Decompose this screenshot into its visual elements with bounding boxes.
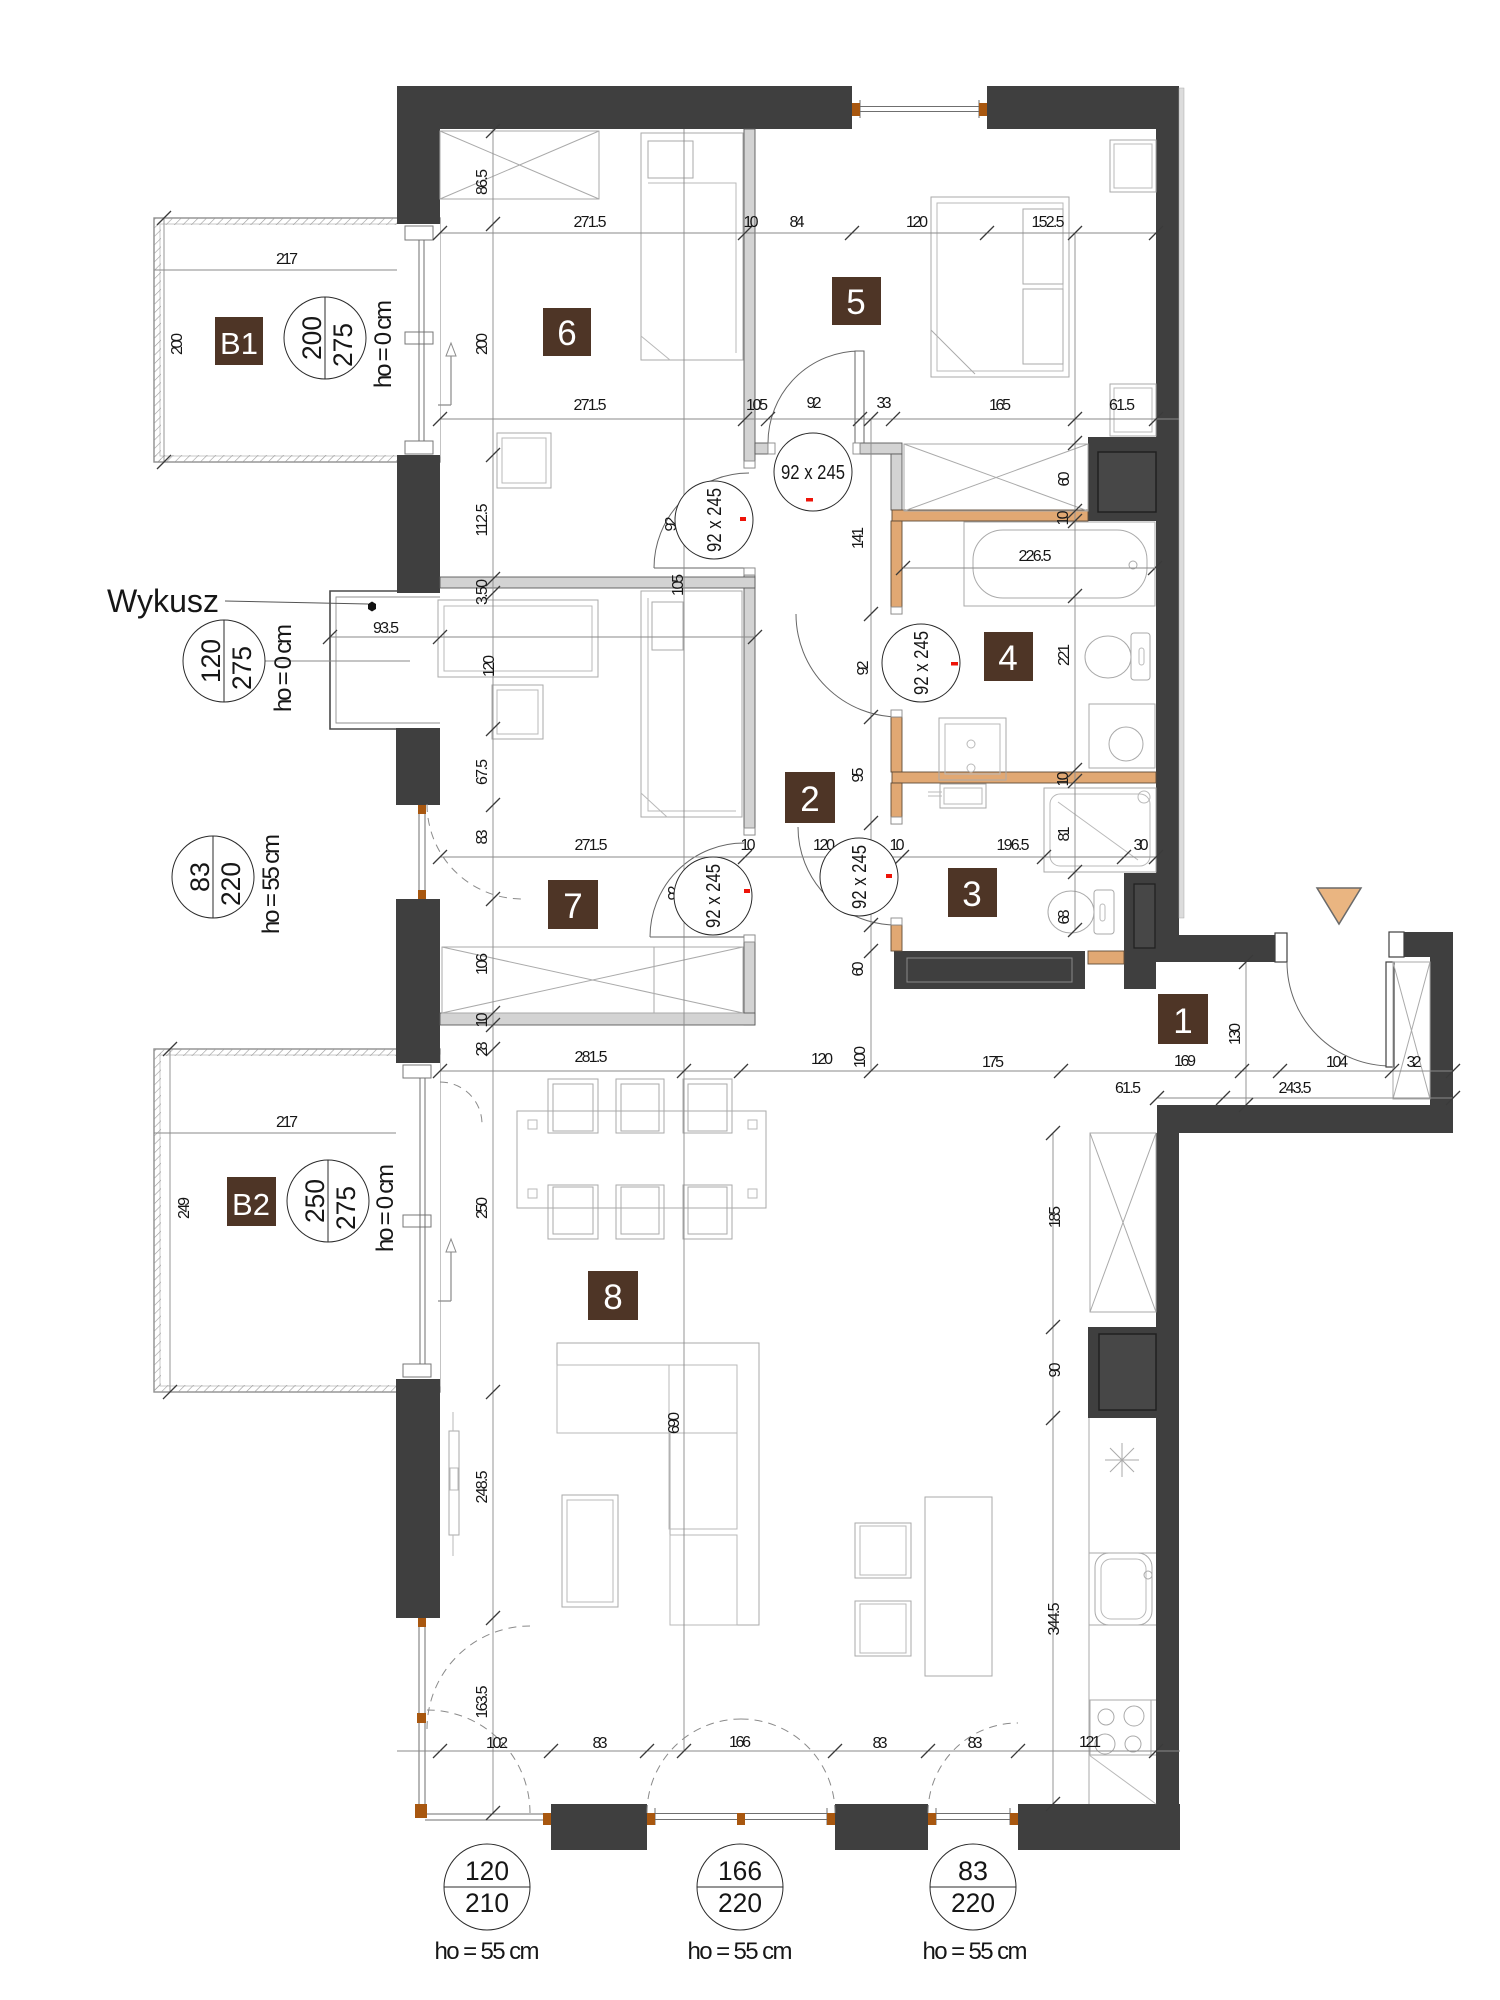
- svg-text:95: 95: [850, 767, 867, 782]
- svg-text:120: 120: [906, 214, 928, 231]
- svg-text:92 x 245: 92 x 245: [781, 462, 845, 484]
- svg-text:163.5: 163.5: [474, 1685, 491, 1718]
- svg-text:Wykusz: Wykusz: [107, 583, 219, 619]
- svg-text:81: 81: [1056, 826, 1073, 841]
- svg-text:200: 200: [169, 333, 186, 355]
- svg-text:106: 106: [474, 953, 491, 975]
- svg-text:120: 120: [481, 655, 498, 677]
- svg-text:3.50: 3.50: [474, 579, 491, 605]
- svg-text:92 x 245: 92 x 245: [703, 864, 725, 928]
- svg-text:200: 200: [297, 316, 327, 360]
- svg-text:92 x 245: 92 x 245: [849, 845, 871, 909]
- svg-text:120: 120: [811, 1051, 833, 1068]
- svg-text:220: 220: [216, 862, 246, 906]
- svg-text:217: 217: [276, 251, 298, 268]
- svg-text:166: 166: [718, 1856, 762, 1886]
- svg-text:10: 10: [1055, 771, 1072, 786]
- svg-text:10: 10: [741, 837, 756, 854]
- svg-text:60: 60: [1056, 471, 1073, 486]
- svg-text:10: 10: [890, 837, 905, 854]
- svg-text:B1: B1: [220, 326, 258, 361]
- svg-text:185: 185: [1047, 1206, 1064, 1228]
- svg-text:100: 100: [852, 1046, 869, 1068]
- svg-text:30: 30: [1134, 837, 1149, 854]
- svg-text:83: 83: [968, 1735, 983, 1752]
- svg-text:60: 60: [850, 961, 867, 976]
- svg-text:271.5: 271.5: [574, 214, 607, 231]
- svg-text:121: 121: [1079, 1734, 1101, 1751]
- svg-text:10: 10: [474, 1012, 491, 1027]
- svg-text:ho = 55 cm: ho = 55 cm: [258, 834, 285, 934]
- svg-text:92: 92: [855, 660, 872, 675]
- svg-text:104: 104: [1326, 1054, 1348, 1071]
- svg-text:83: 83: [873, 1735, 888, 1752]
- svg-text:86.5: 86.5: [474, 169, 491, 195]
- svg-text:271.5: 271.5: [574, 397, 607, 414]
- svg-text:32: 32: [1407, 1054, 1422, 1071]
- svg-text:220: 220: [951, 1888, 995, 1918]
- svg-text:105: 105: [746, 397, 768, 414]
- svg-text:ho = 55 cm: ho = 55 cm: [435, 1938, 540, 1965]
- svg-text:275: 275: [328, 323, 358, 367]
- svg-text:250: 250: [300, 1179, 330, 1223]
- svg-text:67.5: 67.5: [474, 759, 491, 785]
- svg-text:3: 3: [962, 875, 981, 914]
- svg-text:8: 8: [603, 1278, 622, 1317]
- svg-text:152.5: 152.5: [1032, 214, 1065, 231]
- svg-text:1: 1: [1173, 1002, 1192, 1041]
- svg-text:68: 68: [1056, 909, 1073, 924]
- svg-text:120: 120: [196, 639, 226, 683]
- svg-text:5: 5: [846, 283, 865, 322]
- svg-text:275: 275: [331, 1186, 361, 1230]
- svg-text:249: 249: [176, 1197, 193, 1219]
- svg-text:83: 83: [958, 1856, 988, 1886]
- svg-text:120: 120: [465, 1856, 509, 1886]
- svg-text:84: 84: [790, 214, 805, 231]
- svg-text:7: 7: [563, 887, 582, 926]
- svg-text:281.5: 281.5: [575, 1049, 608, 1066]
- svg-text:92 x 245: 92 x 245: [911, 631, 933, 695]
- svg-text:83: 83: [593, 1735, 608, 1752]
- svg-text:2: 2: [800, 780, 819, 819]
- svg-text:93.5: 93.5: [373, 620, 399, 637]
- svg-text:ho = 0 cm: ho = 0 cm: [270, 624, 297, 712]
- svg-text:61.5: 61.5: [1109, 397, 1135, 414]
- svg-text:344.5: 344.5: [1046, 1602, 1063, 1635]
- svg-text:83: 83: [474, 829, 491, 844]
- svg-text:105: 105: [670, 574, 687, 596]
- svg-text:217: 217: [276, 1114, 298, 1131]
- svg-text:226.5: 226.5: [1019, 548, 1052, 565]
- svg-text:83: 83: [185, 862, 215, 892]
- svg-text:141: 141: [850, 527, 867, 549]
- svg-text:90: 90: [1047, 1362, 1064, 1377]
- svg-text:33: 33: [877, 395, 892, 412]
- svg-text:ho = 55 cm: ho = 55 cm: [923, 1938, 1028, 1965]
- svg-text:220: 220: [718, 1888, 762, 1918]
- svg-text:10: 10: [744, 214, 759, 231]
- svg-text:248.5: 248.5: [474, 1470, 491, 1503]
- svg-text:175: 175: [982, 1054, 1004, 1071]
- svg-text:169: 169: [1174, 1053, 1196, 1070]
- svg-text:6: 6: [557, 314, 576, 353]
- svg-text:102: 102: [486, 1735, 508, 1752]
- svg-text:243.5: 243.5: [1279, 1080, 1312, 1097]
- svg-text:10: 10: [1055, 510, 1072, 525]
- svg-text:130: 130: [1227, 1023, 1244, 1045]
- svg-text:165: 165: [989, 397, 1011, 414]
- svg-text:4: 4: [998, 639, 1017, 678]
- svg-text:B2: B2: [232, 1187, 270, 1222]
- svg-text:271.5: 271.5: [575, 837, 608, 854]
- svg-text:250: 250: [474, 1197, 491, 1219]
- svg-text:61.5: 61.5: [1115, 1080, 1141, 1097]
- svg-text:200: 200: [474, 333, 491, 355]
- svg-text:ho = 55 cm: ho = 55 cm: [688, 1938, 793, 1965]
- svg-text:210: 210: [465, 1888, 509, 1918]
- svg-text:166: 166: [729, 1734, 751, 1751]
- svg-text:275: 275: [227, 646, 257, 690]
- svg-text:ho = 0 cm: ho = 0 cm: [372, 1164, 399, 1252]
- svg-text:92 x 245: 92 x 245: [704, 488, 726, 552]
- svg-text:ho = 0 cm: ho = 0 cm: [370, 300, 397, 388]
- svg-text:196.5: 196.5: [997, 837, 1030, 854]
- svg-text:112.5: 112.5: [474, 503, 491, 536]
- svg-text:92: 92: [807, 395, 822, 412]
- svg-text:690: 690: [666, 1412, 683, 1434]
- svg-text:221: 221: [1056, 644, 1073, 666]
- svg-text:28: 28: [474, 1041, 491, 1056]
